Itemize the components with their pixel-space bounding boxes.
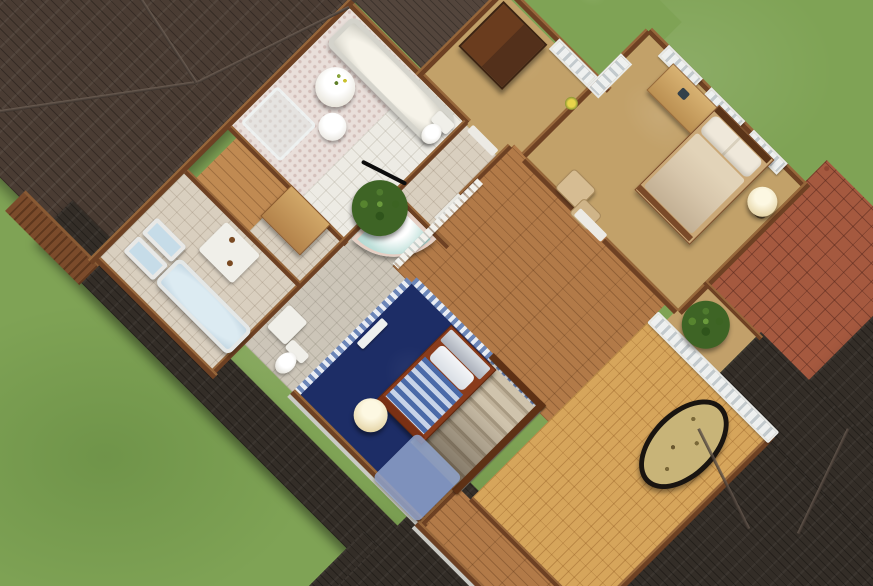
floorplan-scene [0, 0, 873, 586]
rotated-house-layer [0, 0, 873, 586]
